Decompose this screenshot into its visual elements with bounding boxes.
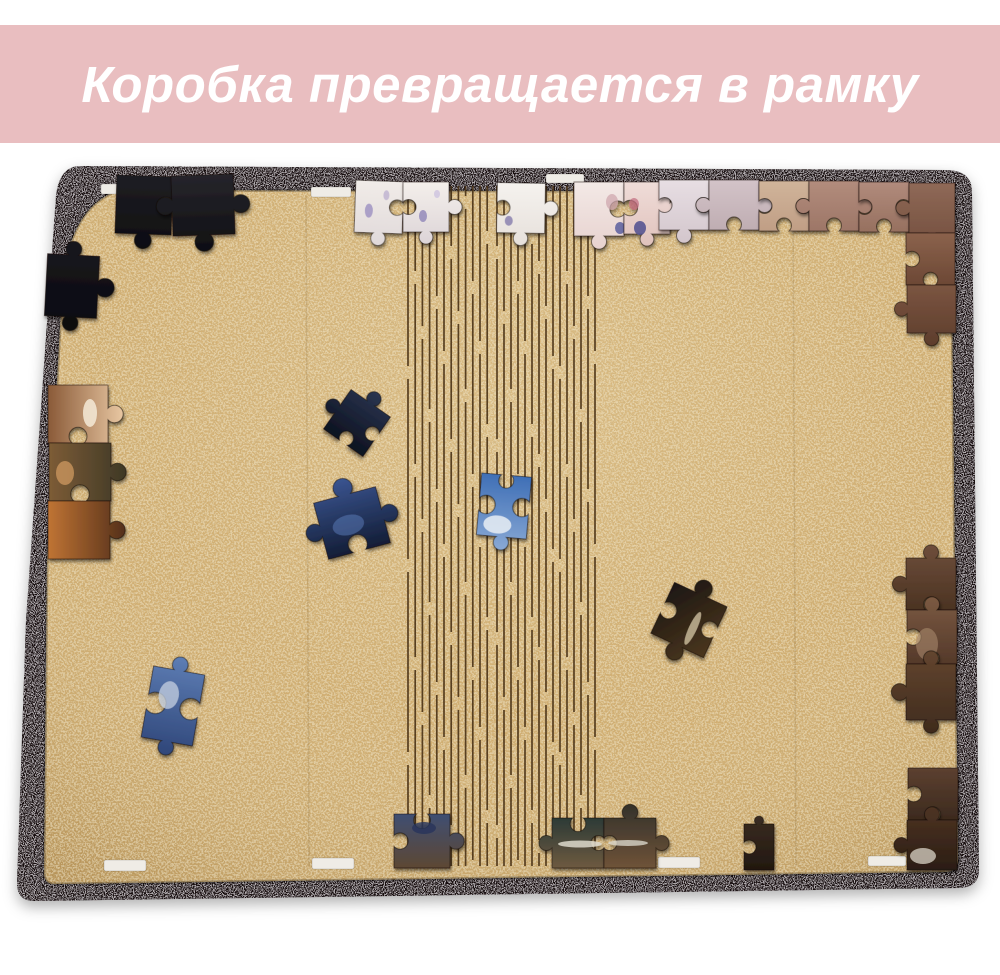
piece-artwork-mark xyxy=(910,848,936,864)
product-photo xyxy=(0,0,1000,975)
latch-slot xyxy=(311,187,351,197)
piece-artwork-mark xyxy=(83,399,97,427)
latch-slot xyxy=(868,856,906,866)
piece-artwork-mark xyxy=(412,822,436,834)
piece-artwork-mark xyxy=(558,841,602,848)
latch-slot xyxy=(658,857,700,868)
piece-artwork-mark xyxy=(615,222,625,234)
promo-banner-text: Коробка превращается в рамку xyxy=(81,55,918,114)
piece-artwork-mark xyxy=(629,198,639,210)
piece-artwork-mark xyxy=(434,190,440,198)
page: Коробка превращается в рамку xyxy=(0,0,1000,975)
piece-artwork-mark xyxy=(608,840,648,846)
piece-artwork-mark xyxy=(634,221,646,235)
latch-slot xyxy=(312,858,354,869)
latch-slot xyxy=(104,860,146,871)
promo-banner: Коробка превращается в рамку xyxy=(0,25,1000,143)
piece-artwork-mark xyxy=(419,210,427,222)
piece-artwork-mark xyxy=(56,461,74,485)
piece-artwork-mark xyxy=(606,194,618,210)
